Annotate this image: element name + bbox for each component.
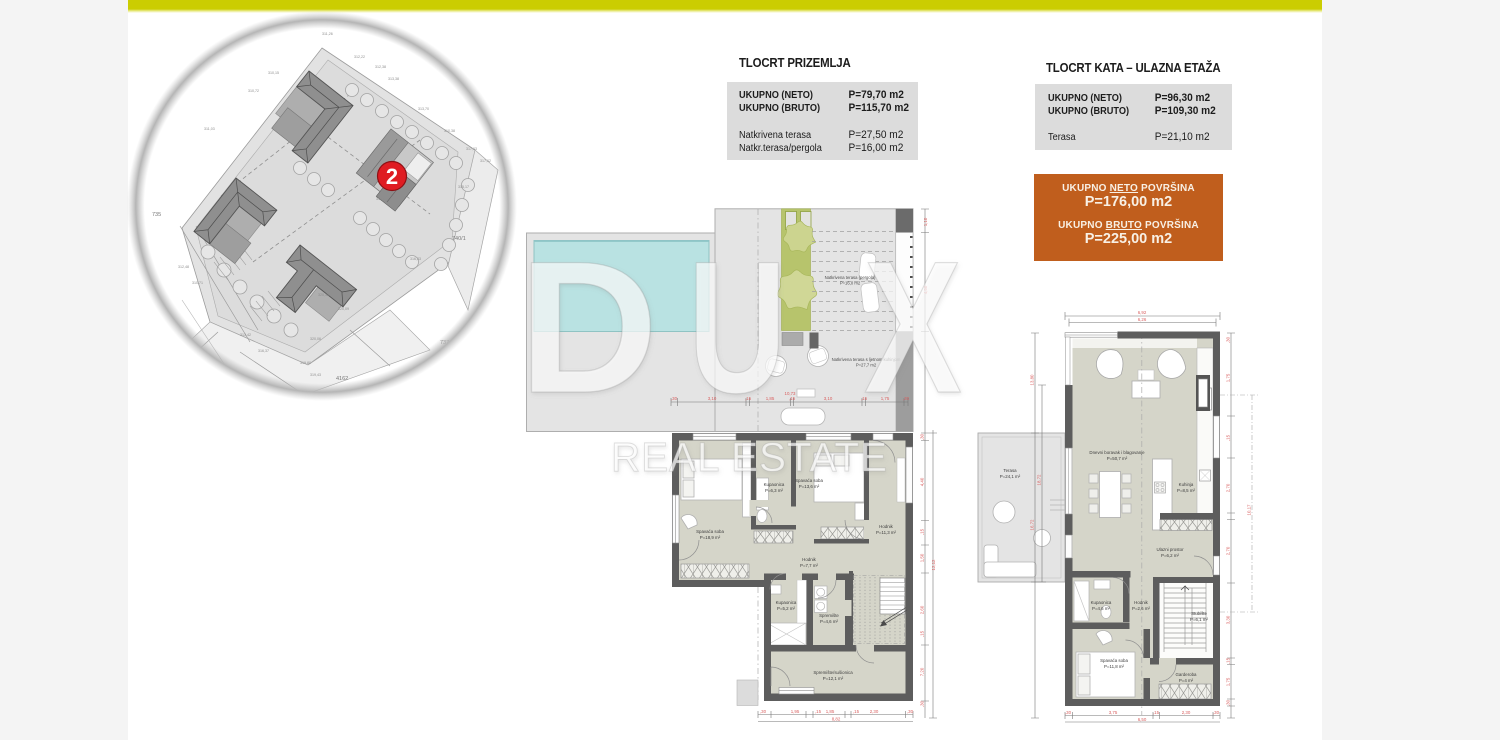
svg-text:P=5,2 m²: P=5,2 m²: [777, 606, 795, 611]
svg-text:P=12,1 m²: P=12,1 m²: [823, 676, 844, 681]
svg-text:2,70: 2,70: [1226, 483, 1231, 492]
svg-text:X: X: [864, 221, 962, 432]
svg-text:6,92: 6,92: [1138, 310, 1147, 315]
svg-text:1,75: 1,75: [1226, 373, 1231, 382]
svg-text:Kuhinja: Kuhinja: [1179, 482, 1194, 487]
svg-text:2,30: 2,30: [1182, 710, 1191, 715]
svg-text:6,26: 6,26: [1138, 317, 1147, 322]
svg-text:P=11,8 m²: P=11,8 m²: [1104, 664, 1125, 669]
svg-text:P=6,2 m²: P=6,2 m²: [1161, 553, 1179, 558]
svg-text:P=8,5 m²: P=8,5 m²: [1177, 488, 1195, 493]
svg-text:6,50: 6,50: [1138, 717, 1147, 722]
svg-text:,15: ,15: [920, 528, 925, 535]
svg-text:Spavaća soba: Spavaća soba: [696, 529, 724, 534]
svg-text:P=13,6 m²: P=13,6 m²: [799, 484, 820, 489]
svg-text:P=11,3 m²: P=11,3 m²: [876, 530, 897, 535]
svg-text:P=4,6 m²: P=4,6 m²: [820, 619, 838, 624]
svg-text:P=16,0 m2: P=16,0 m2: [840, 281, 861, 286]
svg-text:,15: ,15: [920, 630, 925, 637]
svg-text:3,75: 3,75: [1109, 710, 1118, 715]
svg-text:P=50,7 m²: P=50,7 m²: [1107, 456, 1128, 461]
svg-text:4,40: 4,40: [920, 477, 925, 486]
svg-text:,30: ,30: [920, 433, 925, 440]
svg-text:,30: ,30: [1226, 699, 1231, 706]
svg-text:P=4 m²: P=4 m²: [1179, 678, 1194, 683]
svg-text:Dnevni boravak i blagovanje: Dnevni boravak i blagovanje: [1089, 450, 1145, 455]
svg-text:,30: ,30: [671, 396, 678, 401]
svg-text:16,72: 16,72: [1030, 519, 1035, 531]
svg-text:2,30: 2,30: [870, 709, 879, 714]
svg-text:Ulazni prostor: Ulazni prostor: [1156, 547, 1184, 552]
svg-text:10,17: 10,17: [1247, 504, 1252, 516]
svg-text:1,85: 1,85: [826, 709, 835, 714]
svg-text:13,80: 13,80: [1030, 374, 1035, 386]
svg-text:Garderoba: Garderoba: [1176, 672, 1198, 677]
svg-text:,15: ,15: [789, 396, 796, 401]
svg-text:2: 2: [386, 164, 398, 189]
svg-text:18,72: 18,72: [1037, 474, 1042, 486]
svg-text:2,70: 2,70: [1226, 546, 1231, 555]
svg-text:Hodnik: Hodnik: [879, 524, 893, 529]
svg-text:3,10: 3,10: [824, 396, 833, 401]
svg-text:Kupaonica: Kupaonica: [764, 482, 785, 487]
svg-text:12,12: 12,12: [931, 559, 936, 571]
svg-text:7,20: 7,20: [920, 667, 925, 676]
svg-text:1,75: 1,75: [1226, 677, 1231, 686]
svg-text:P=2,6 m²: P=2,6 m²: [1132, 606, 1150, 611]
svg-text:Stubište: Stubište: [1191, 611, 1207, 616]
svg-text:P=18,9 m²: P=18,9 m²: [700, 535, 721, 540]
svg-text:,30: ,30: [1226, 336, 1231, 343]
svg-text:,30: ,30: [1065, 710, 1072, 715]
svg-text:,30: ,30: [907, 709, 914, 714]
svg-text:REAL ESTATE: REAL ESTATE: [611, 434, 888, 480]
svg-text:,15: ,15: [853, 709, 860, 714]
svg-text:Spremište/sušionica: Spremište/sušionica: [813, 670, 853, 675]
svg-text:Hodnik: Hodnik: [1134, 600, 1148, 605]
svg-text:1,50: 1,50: [920, 553, 925, 562]
svg-text:2,60: 2,60: [920, 605, 925, 614]
svg-text:Hodnik: Hodnik: [802, 557, 816, 562]
svg-text:Spavaća soba: Spavaća soba: [1100, 658, 1128, 663]
svg-text:P=4,6 m²: P=4,6 m²: [1092, 606, 1110, 611]
svg-text:P=6,1 m²: P=6,1 m²: [1190, 617, 1208, 622]
svg-text:,30: ,30: [920, 700, 925, 707]
svg-text:,30: ,30: [1213, 710, 1220, 715]
svg-text:P=6,3 m²: P=6,3 m²: [765, 488, 783, 493]
svg-text:D: D: [519, 223, 659, 433]
svg-text:,15: ,15: [1226, 434, 1231, 441]
svg-text:P=7,7 m²: P=7,7 m²: [800, 563, 818, 568]
svg-text:U: U: [688, 221, 787, 432]
svg-text:P=24,1 m²: P=24,1 m²: [1000, 474, 1021, 479]
svg-text:1,95: 1,95: [791, 709, 800, 714]
svg-text:,15: ,15: [815, 709, 822, 714]
svg-text:Kupaonica: Kupaonica: [776, 600, 797, 605]
svg-text:Terasa: Terasa: [1003, 468, 1017, 473]
svg-text:,15: ,15: [1153, 710, 1160, 715]
svg-text:,15: ,15: [1226, 657, 1231, 664]
svg-text:Spremište: Spremište: [819, 613, 839, 618]
svg-text:,30: ,30: [760, 709, 767, 714]
svg-text:8,82: 8,82: [832, 717, 841, 722]
svg-text:Kupaonica: Kupaonica: [1091, 600, 1112, 605]
svg-text:3,30: 3,30: [1226, 615, 1231, 624]
